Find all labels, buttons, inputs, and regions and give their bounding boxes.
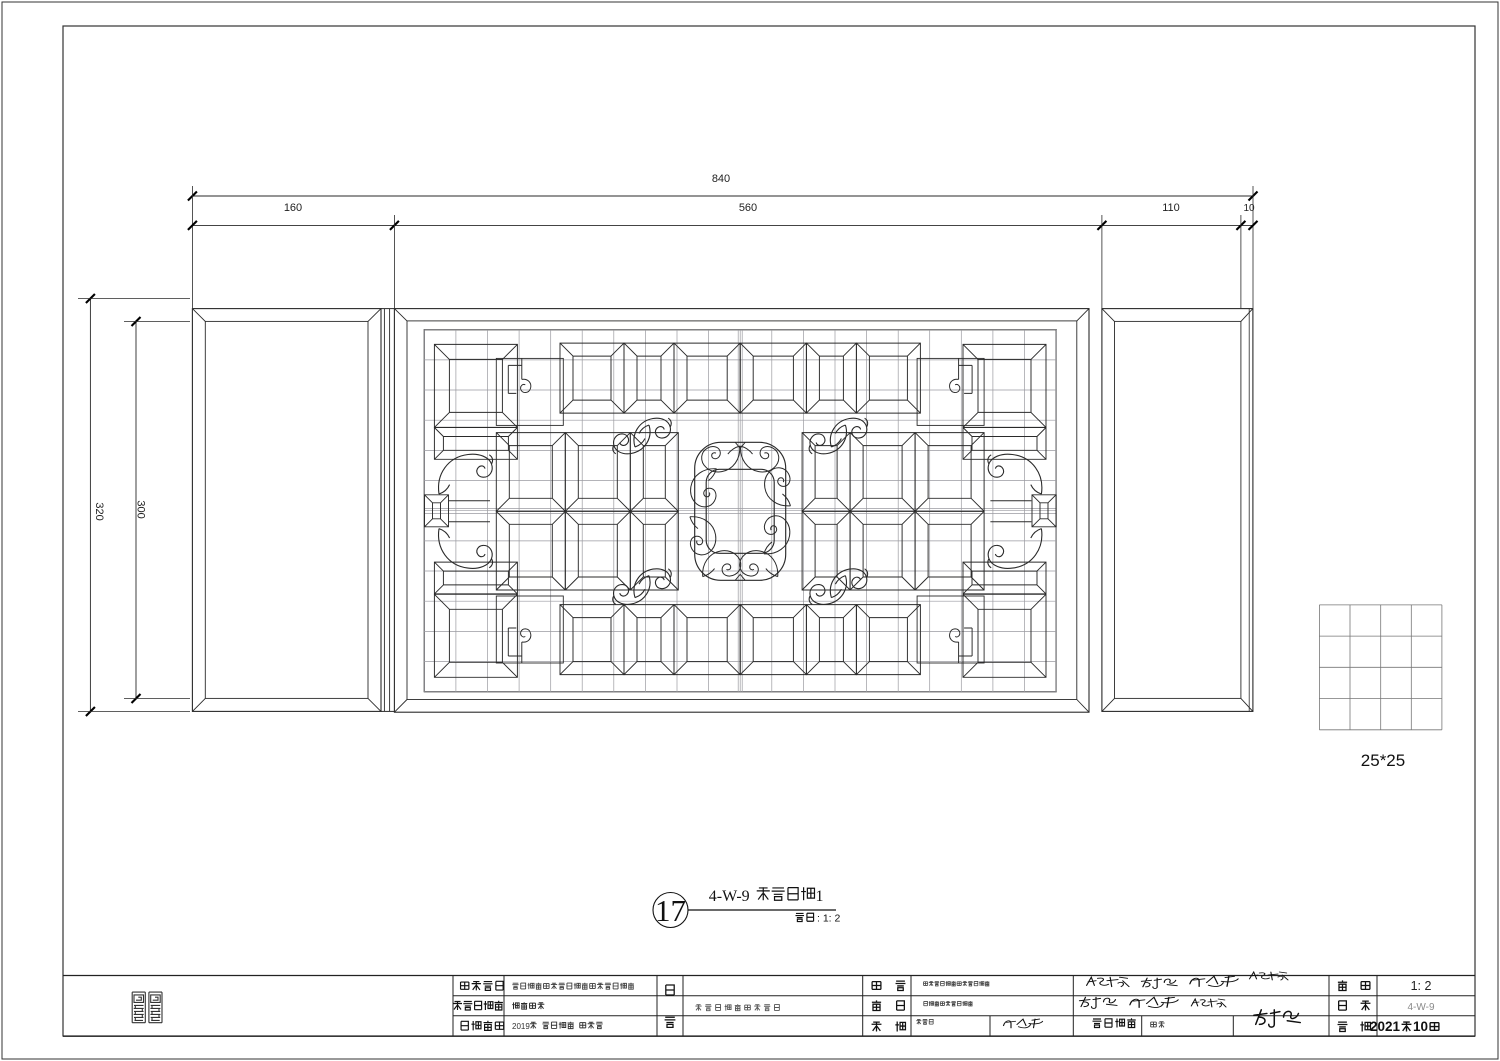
- svg-text:4-W-9: 4-W-9: [709, 888, 750, 905]
- svg-text:2021: 2021: [1370, 1019, 1401, 1034]
- svg-text:17: 17: [655, 893, 686, 928]
- svg-text:1: 1: [816, 888, 824, 905]
- svg-text:110: 110: [1162, 202, 1180, 214]
- svg-text:10: 10: [1243, 203, 1255, 214]
- svg-text:560: 560: [739, 202, 757, 214]
- svg-text:300: 300: [135, 500, 147, 518]
- svg-text:160: 160: [284, 202, 302, 214]
- svg-text:1: 2: 1: 2: [1411, 979, 1432, 993]
- svg-text:: 1: 2: : 1: 2: [817, 913, 841, 925]
- svg-text:2019: 2019: [512, 1022, 530, 1031]
- svg-text:840: 840: [712, 173, 730, 185]
- svg-text:25*25: 25*25: [1361, 751, 1405, 770]
- svg-text:320: 320: [93, 502, 105, 520]
- svg-text:4-W-9: 4-W-9: [1407, 1002, 1434, 1013]
- svg-text:10: 10: [1413, 1019, 1428, 1034]
